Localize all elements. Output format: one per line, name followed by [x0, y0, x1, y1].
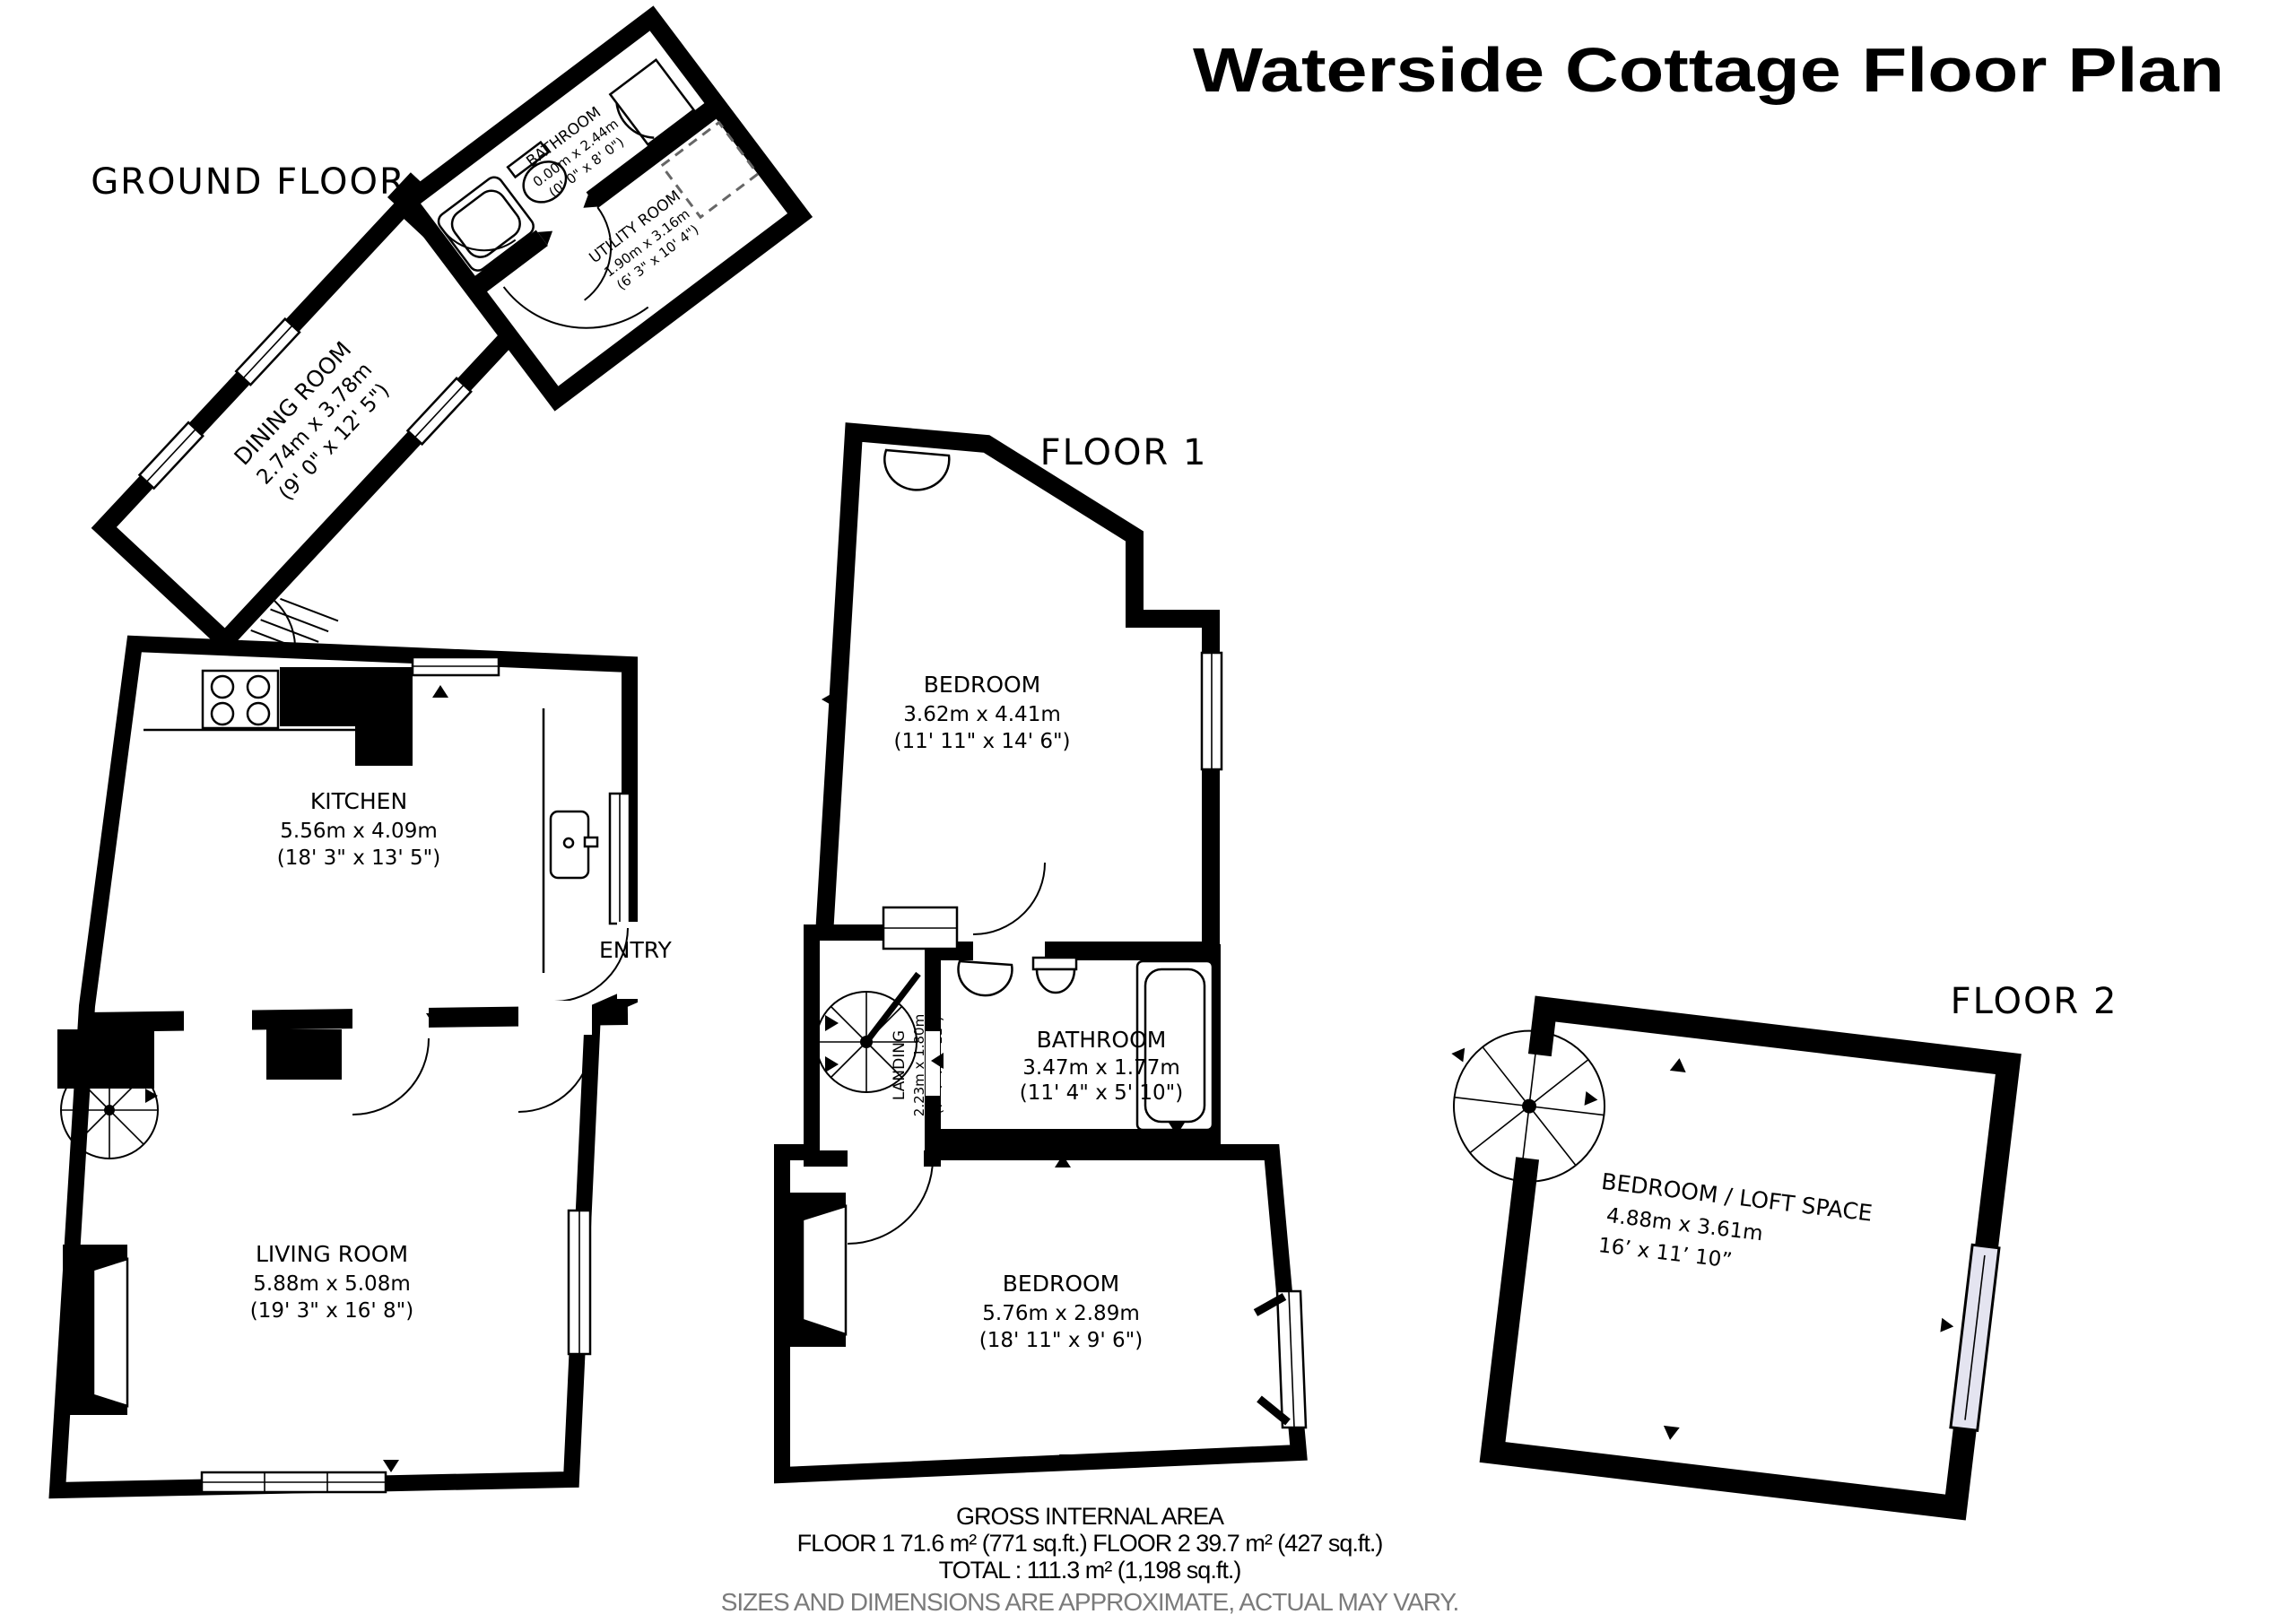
fireplace-icon: [63, 1245, 127, 1415]
f1-bedroom-bottom-metric: 5.76m x 2.89m: [982, 1302, 1139, 1325]
f1-landing-closet: [883, 907, 957, 949]
f1-bathroom-name: BATHROOM: [1037, 1027, 1167, 1053]
stove-icon: [203, 671, 278, 728]
f1-bedroom-bottom-name: BEDROOM: [1003, 1271, 1120, 1297]
living-imperial: (19' 3" x 16' 8"): [250, 1299, 413, 1323]
landing-name: LANDING: [891, 1030, 909, 1100]
f1-bedroom-top-window: [1202, 653, 1222, 769]
footer-disclaimer: SIZES AND DIMENSIONS ARE APPROXIMATE, AC…: [721, 1588, 1459, 1616]
floor2-loft: BEDROOM / LOFT SPACE 4.88m x 3.61m 16’ x…: [1405, 998, 2022, 1508]
kitchen-name: KITCHEN: [310, 788, 407, 814]
divider-door-gap-2: [518, 1001, 592, 1035]
f1-bedroom-bottom-imperial: (18' 11" x 9' 6"): [979, 1329, 1143, 1352]
kitchen-window-top: [413, 657, 499, 675]
floor2-label: FLOOR 2: [1951, 981, 2118, 1022]
landing-metric: 2.23m x 1.80m: [911, 1014, 927, 1116]
f1-bedroom-door-gap: [848, 1146, 924, 1171]
floor1-label: FLOOR 1: [1040, 432, 1208, 473]
footer-total-line: TOTAL : 111.3 m² (1,198 sq.ft.): [939, 1557, 1241, 1584]
living-window-bottom: [202, 1472, 386, 1492]
kitchen-metric: 5.56m x 4.09m: [280, 820, 437, 843]
footer-heading: GROSS INTERNAL AREA: [956, 1503, 1224, 1530]
divider-opening: [184, 1004, 252, 1035]
f1-bathroom-imperial: (11' 4" x 5' 10"): [1020, 1081, 1183, 1105]
living-metric: 5.88m x 5.08m: [253, 1272, 410, 1296]
f1-bedroom-top-imperial: (11' 11" x 14' 6"): [893, 730, 1070, 753]
arrow-icon: [1450, 1046, 1465, 1063]
spiral-stair-ground-icon: [61, 1062, 158, 1159]
living-window-right: [569, 1211, 590, 1354]
f1-bedroom-top-name: BEDROOM: [924, 672, 1041, 698]
ground-floor-label: GROUND FLOOR: [91, 161, 406, 203]
f1-bathroom-metric: 3.47m x 1.77m: [1022, 1056, 1179, 1080]
footer-floors-line: FLOOR 1 71.6 m² (771 sq.ft.) FLOOR 2 39.…: [797, 1530, 1383, 1557]
kitchen-window-right: [610, 794, 630, 924]
f1-chimney-icon: [776, 1193, 846, 1347]
kitchen-imperial: (18' 3" x 13' 5"): [277, 846, 440, 870]
living-name: LIVING ROOM: [256, 1241, 408, 1267]
floor-plan-page: Waterside Cottage Floor Plan GROUND FLOO…: [0, 0, 2296, 1623]
arrow-icon: [822, 692, 834, 707]
divider-door-gap-1: [352, 1002, 429, 1035]
page-title: Waterside Cottage Floor Plan: [1193, 35, 2224, 105]
kitchen-wall-block: [280, 667, 413, 726]
entry-label: ENTRY: [599, 937, 673, 963]
floor-plan-canvas: Waterside Cottage Floor Plan GROUND FLOO…: [0, 0, 2296, 1623]
f1-bedroom-top-metric: 3.62m x 4.41m: [903, 703, 1060, 726]
f2-walls: [1492, 1009, 2008, 1507]
divider-wall-stub: [266, 1029, 342, 1080]
